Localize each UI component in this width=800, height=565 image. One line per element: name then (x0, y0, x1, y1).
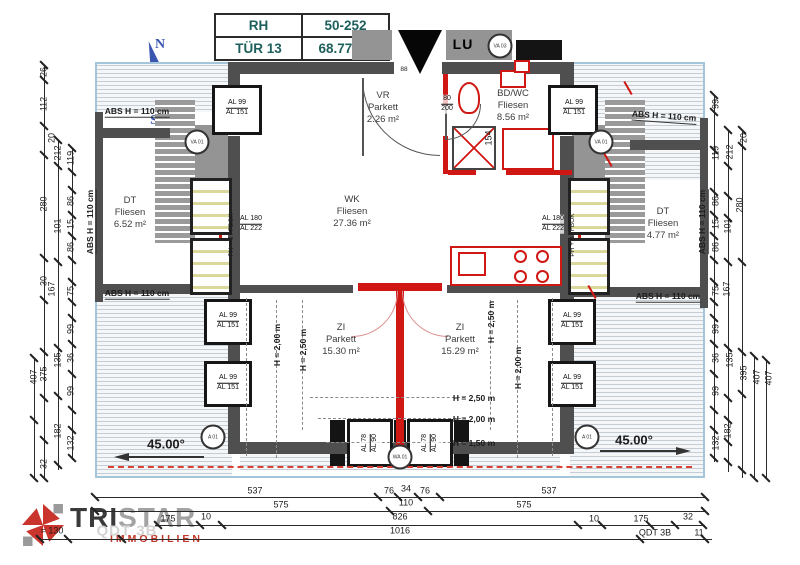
dimension-label: 15 (67, 219, 76, 229)
wall (95, 128, 170, 138)
wall-marker: VA 01 (589, 130, 614, 155)
dimension-label: 20 (740, 133, 749, 143)
stove-burner (536, 270, 549, 283)
dimension-label: 119 (67, 151, 76, 165)
window-label-line2: AL 151 (561, 383, 583, 393)
dimension-label: 86 (712, 242, 721, 252)
window-label-line2: AL 151 (226, 108, 248, 118)
annotation: LU (453, 37, 474, 51)
dimension-label: 826 (392, 513, 407, 522)
dimension-label: 36 (67, 353, 76, 363)
annotation: PH + 0 / FBOK (570, 213, 577, 256)
annotation: ABS H = 110 cm (698, 190, 709, 255)
room-label: BD/WCFliesen8.56 m² (497, 88, 529, 124)
window-label: AL 180AL 222 (240, 215, 262, 234)
window-label-line2: AL 151 (563, 108, 585, 118)
room-label: WKFliesen27.36 m² (333, 194, 371, 230)
dimension-label: 375 (40, 366, 49, 381)
dimension-label: 99 (67, 386, 76, 396)
room-label: DTFliesen6.52 m² (114, 195, 146, 231)
annotation: ABS H = 110 cm (105, 107, 170, 118)
dimension-label: 407 (30, 369, 39, 384)
window-label-line2: AL 90 (430, 434, 440, 452)
window-label: AL 99AL 151 (561, 312, 583, 331)
annotation: 45.00° (615, 434, 653, 447)
window-label: AL 99AL 151 (217, 312, 239, 331)
annotation: 45.00° (147, 438, 185, 451)
room-label: ZIParkett15.30 m² (322, 322, 360, 358)
dimension-label: 280 (736, 197, 745, 212)
room-label: VRParkett2.26 m² (367, 90, 399, 126)
room-area: 4.77 m² (647, 230, 679, 242)
room-name: ZI (441, 322, 479, 334)
dimension-label: 395 (740, 365, 749, 380)
window-label-line2: AL 222 (542, 224, 564, 234)
dimension-label: 110 (399, 499, 413, 508)
annotation: H = 2,00 m (273, 324, 282, 366)
compass-n: N (155, 37, 165, 52)
wall (228, 62, 240, 87)
wall (348, 62, 394, 74)
wall (228, 344, 240, 362)
dimension-label: 86 (67, 242, 76, 252)
room-area: 8.56 m² (497, 112, 529, 124)
height-zone-dashline (326, 442, 466, 443)
dimension-label: 182 (724, 423, 733, 438)
wall-marker: A 01 (575, 425, 600, 450)
window-label-line1: AL 99 (228, 99, 246, 106)
room-area: 15.30 m² (322, 346, 360, 358)
room-area: 27.36 m² (333, 218, 371, 230)
dimension-label: QDT 3B (639, 529, 671, 538)
height-zone-dashline (318, 418, 466, 419)
angle-arrow-head (114, 453, 129, 461)
dimension-label: 537 (247, 487, 262, 496)
annotation: ABS H = 110 cm (86, 190, 97, 255)
dimension-label: 76 (384, 487, 394, 496)
wall-black (516, 40, 562, 60)
door-leaf (362, 78, 364, 156)
dimension-label: 182 (54, 423, 63, 438)
dimension-line (742, 130, 743, 478)
dimension-label: 32 (40, 459, 49, 469)
dimension-label: 86 (67, 196, 76, 206)
annotation: H = 2,00 m (453, 415, 495, 424)
dimension-label: 99 (712, 99, 721, 109)
red-wall (448, 170, 476, 175)
stove-burner (536, 250, 549, 263)
red-wall (396, 291, 404, 457)
annotation: H = 2,00 m (514, 347, 523, 389)
room-name: WK (333, 194, 371, 206)
room-label: DTFliesen4.77 m² (647, 206, 679, 242)
title-cell-type: RH (216, 15, 301, 36)
window-label-line2: AL 151 (217, 321, 239, 331)
title-cell-door: TÜR 13 (216, 38, 301, 59)
dimension-label: 212 (726, 144, 735, 159)
dimension-label: 135 (726, 352, 735, 367)
dimension-label: 175 (633, 515, 648, 524)
room-material: Parkett (367, 102, 399, 114)
room-material: Fliesen (647, 218, 679, 230)
floor-plan: RH 50-252 TÜR 13 68.77 m² N E S W TRISTA… (0, 0, 800, 565)
room-material: Fliesen (497, 100, 529, 112)
wall-marker: VA 01 (185, 130, 210, 155)
dimension-label: 1016 (390, 527, 410, 536)
dimension-label: 26 (40, 67, 49, 77)
room-label: ZIParkett15.29 m² (441, 322, 479, 358)
annotation: H = 1,50 m (453, 439, 495, 448)
dimension-label: 167 (723, 281, 732, 296)
room-name: ZI (322, 322, 360, 334)
window-label-line2: AL 90 (370, 434, 380, 452)
room-name: BD/WC (497, 88, 529, 100)
terrace-edge (95, 476, 705, 478)
dimension-label: 32 (683, 513, 693, 522)
annotation: 88 (400, 67, 407, 74)
stair-hatch (155, 100, 195, 243)
window-label-line2: AL 151 (561, 321, 583, 331)
window-label: AL 78AL 90 (361, 434, 380, 452)
dimension-label: 175 (160, 515, 175, 524)
dimension-label: 11 (694, 529, 703, 538)
window-label-line1: 80 (443, 95, 451, 102)
dimension-label: = 130 (41, 527, 64, 536)
dimension-label: 86 (712, 196, 721, 206)
terrace-edge (95, 62, 228, 64)
angle-arrow (600, 450, 676, 452)
dimension-label: 20 (48, 133, 57, 143)
dimension-label: 10 (589, 515, 599, 524)
annotation: ABS H = 110 cm (636, 292, 701, 303)
dimension-label: 75 (712, 286, 721, 296)
dimension-label: 36 (712, 353, 721, 363)
dimension-label: 407 (765, 370, 774, 385)
dimension-label: 15 (712, 219, 721, 229)
dimension-label: 575 (273, 501, 288, 510)
dimension-line (155, 525, 705, 526)
wall (447, 285, 562, 293)
wall-light (352, 30, 392, 60)
window-label-line1: AL 99 (219, 312, 237, 319)
window-label-line1: AL 78 (421, 434, 428, 452)
room-material: Fliesen (333, 206, 371, 218)
dimension-label: 10 (201, 513, 211, 522)
window-label: AL 99AL 151 (217, 374, 239, 393)
dimension-label: 537 (541, 487, 556, 496)
window-label-line2: AL 222 (240, 224, 262, 234)
dimension-label: 34 (401, 485, 411, 494)
annotation: PH + 0 / FBOK (229, 213, 236, 256)
wall (630, 140, 708, 150)
window-label-line2: 200 (441, 104, 453, 114)
dimension-label: 99 (712, 386, 721, 396)
terrace-door-window (190, 238, 232, 295)
wall-marker: WA 01 (388, 445, 413, 470)
dimension-label: 575 (516, 501, 531, 510)
window-label: AL 180AL 222 (542, 215, 564, 234)
dimension-label: 135 (54, 352, 63, 367)
wall (560, 344, 574, 362)
wall-marker: A 01 (201, 425, 226, 450)
terrace-door-window (190, 178, 232, 235)
fixture (458, 252, 486, 276)
window-label: 80200 (441, 95, 453, 114)
wall-marker: VA 03 (488, 34, 513, 59)
room-material: Fliesen (114, 207, 146, 219)
dimension-label: 132 (712, 435, 721, 450)
dimension-label: 407 (753, 369, 762, 384)
window-label-line1: AL 180 (240, 215, 262, 222)
red-wall (358, 283, 442, 291)
dimension-label: 280 (40, 196, 49, 211)
height-zone-dashline (552, 298, 553, 456)
window-label-line1: AL 99 (563, 312, 581, 319)
window-label-line1: AL 180 (542, 215, 564, 222)
dimension-label: 132 (67, 435, 76, 450)
annotation: H = 2,50 m (453, 394, 495, 403)
window-label: AL 99AL 151 (561, 374, 583, 393)
annotation: QDT 3B (96, 524, 157, 539)
dimension-label: 167 (48, 281, 57, 296)
room-area: 6.52 m² (114, 219, 146, 231)
terrace-edge (573, 62, 705, 64)
fixture (502, 128, 554, 170)
height-zone-dashline (310, 397, 465, 398)
annotation: ABS H = 110 cm (105, 289, 170, 300)
window-label-line1: AL 99 (565, 99, 583, 106)
dimension-line (58, 140, 59, 470)
dimension-label: 101 (54, 218, 63, 233)
room-name: DT (647, 206, 679, 218)
wall (240, 285, 353, 293)
dimension-label: 99 (712, 324, 721, 334)
window-label-line1: AL 99 (563, 374, 581, 381)
stove-burner (514, 270, 527, 283)
stove-burner (514, 250, 527, 263)
dimension-label: 75 (67, 286, 76, 296)
room-name: DT (114, 195, 146, 207)
window-label-line2: AL 151 (217, 383, 239, 393)
dimension-label: 212 (54, 145, 63, 160)
dimension-label: 76 (420, 487, 430, 496)
dimension-label: 101 (724, 218, 733, 233)
red-wall (506, 170, 572, 175)
annotation: H = 2,50 m (487, 301, 496, 343)
room-material: Parkett (322, 334, 360, 346)
room-area: 2.26 m² (367, 114, 399, 126)
window-label: AL 99AL 151 (563, 99, 585, 118)
dimension-label: 99 (67, 324, 76, 334)
annotation: H = 2,50 m (299, 329, 308, 371)
dimension-label: 119 (712, 146, 721, 160)
room-area: 15.29 m² (441, 346, 479, 358)
angle-arrow (128, 456, 204, 458)
room-material: Parkett (441, 334, 479, 346)
room-name: VR (367, 90, 399, 102)
dimension-label: 112 (40, 97, 49, 111)
window-label-line1: AL 78 (361, 434, 368, 452)
wall (560, 62, 574, 87)
red-wall (443, 136, 448, 174)
annotation: 154 (485, 130, 494, 145)
window-label-line1: AL 99 (219, 374, 237, 381)
height-zone-dashline (246, 298, 247, 456)
angle-arrow-head (676, 447, 691, 455)
wall (228, 62, 348, 74)
fixture (514, 60, 530, 73)
window-label: AL 99AL 151 (226, 99, 248, 118)
stair-hatch (605, 100, 645, 243)
window-label: AL 78AL 90 (421, 434, 440, 452)
